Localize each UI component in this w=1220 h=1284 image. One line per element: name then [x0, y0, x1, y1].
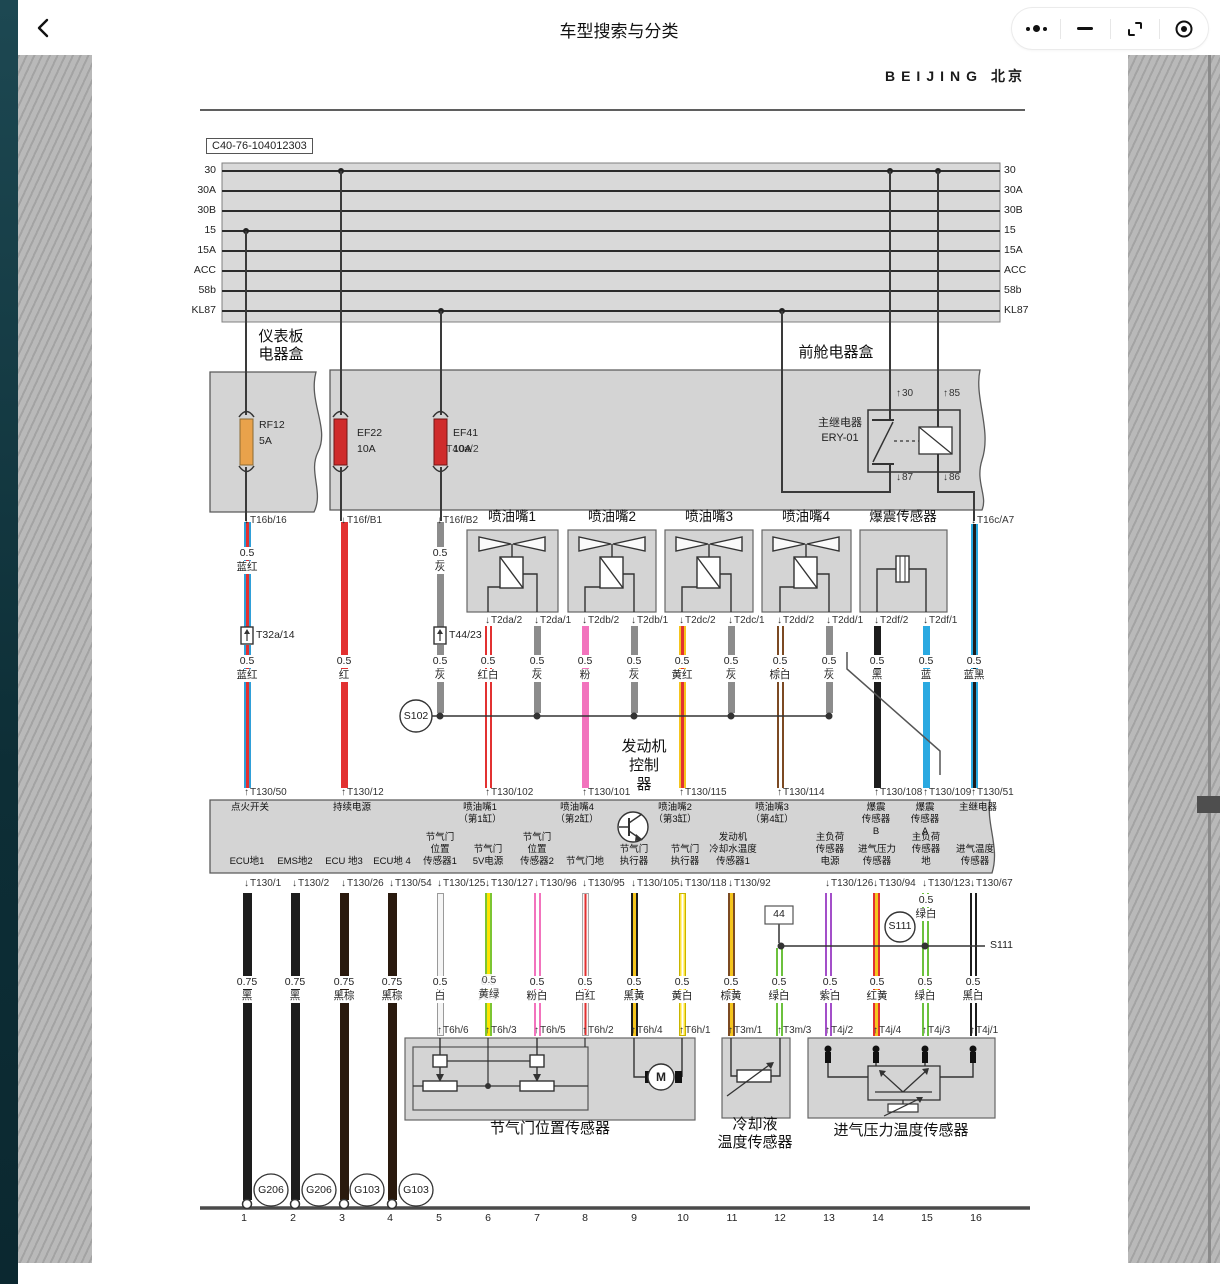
bus-label-left: 30A	[197, 184, 216, 197]
scale-number: 11	[727, 1212, 738, 1225]
terminal-label: T130/50	[244, 786, 287, 799]
motor-label: M	[656, 1071, 666, 1084]
wire-size-label: 0.5	[771, 976, 788, 989]
ecu-pin-label: 喷油嘴1	[463, 802, 497, 814]
wire-color-label: 蓝	[920, 669, 933, 682]
wire-size-label: 0.75	[381, 976, 403, 989]
bus-label-right: 30B	[1004, 204, 1023, 217]
bus-label-right: KL87	[1004, 304, 1029, 317]
scale-number: 14	[872, 1212, 884, 1225]
connector-label: T32a/14	[256, 629, 295, 642]
ground-label: G103	[403, 1184, 429, 1197]
wire-size-label: 0.5	[239, 547, 256, 560]
terminal-label: T2dd/2	[777, 614, 814, 627]
wire-color-label: 黑	[871, 669, 884, 682]
fuse-label: EF22	[357, 427, 382, 440]
terminal-label: T130/108	[874, 786, 922, 799]
wire-size-label: 0.5	[626, 976, 643, 989]
wire-size-label: 0.5	[869, 976, 886, 989]
record-icon[interactable]	[1160, 8, 1208, 49]
wire-color-label: 灰	[434, 561, 447, 574]
fullscreen-icon[interactable]	[1111, 8, 1159, 49]
ecu-pin-label: （第3缸）	[653, 814, 696, 826]
ground-label: G206	[258, 1184, 284, 1197]
ecu-pin-label: 地	[921, 856, 931, 868]
scale-number: 13	[823, 1212, 835, 1225]
wire-size-label: 0.5	[965, 976, 982, 989]
more-icon[interactable]	[1012, 8, 1060, 49]
terminal-label: T130/94	[873, 877, 916, 890]
wire-color-label: 蓝红	[236, 561, 259, 574]
ecu-pin-label: 爆震	[866, 802, 885, 814]
wire-color-label: 黑棕	[333, 990, 356, 1003]
ecu-pin-label: 进气压力	[858, 844, 896, 856]
wire-color-label: 粉	[579, 669, 592, 682]
ecu-pin-label: 发动机	[719, 832, 748, 844]
ecu-pin-label: 传感器	[863, 856, 892, 868]
terminal-label: T16f/B2	[437, 514, 478, 527]
ecu-pin-label: 节气门地	[566, 856, 604, 868]
fuse-label: 10A	[357, 443, 376, 456]
bus-label-right: 15A	[1004, 244, 1023, 257]
scale-number: 1	[241, 1212, 247, 1225]
brand-cn: 北京	[991, 68, 1025, 84]
bus-label-left: KL87	[191, 304, 216, 317]
wire-color-label: 黑黄	[623, 990, 646, 1003]
connector-label: T44/23	[449, 629, 482, 642]
ecu-pin-label: 节气门	[474, 844, 503, 856]
ecu-pin-label: 传感器1	[716, 856, 750, 868]
relay-title: 主继电器	[818, 417, 862, 430]
sensor-title: 冷却液	[732, 1118, 777, 1131]
fuse-label: 5A	[259, 435, 272, 448]
ecu-pin-label: 主负荷	[816, 832, 845, 844]
terminal-label: T16c/A7	[971, 514, 1014, 527]
relay-pin-label: 87	[896, 471, 913, 484]
scale-number: 15	[921, 1212, 933, 1225]
wire-size-label: 0.5	[822, 976, 839, 989]
wire-size-label: 0.5	[723, 655, 740, 668]
wire-color-label: 灰	[434, 669, 447, 682]
ecu-pin-label: 喷油嘴2	[658, 802, 692, 814]
relay-pin-label: 30	[896, 387, 913, 400]
box-title: 仪表板	[258, 330, 303, 343]
ecu-pin-label: 传感器	[911, 814, 940, 826]
wire-color-label: 灰	[628, 669, 641, 682]
fuse-label: RF12	[259, 419, 285, 432]
bus-label-left: 15	[204, 224, 216, 237]
scale-number: 7	[534, 1212, 540, 1225]
ground-label: G206	[306, 1184, 332, 1197]
node-label: 44	[773, 908, 785, 921]
terminal-label: T2dc/2	[679, 614, 716, 627]
terminal-label: T6h/5	[534, 1024, 566, 1037]
ecu-pin-label: ECU 地3	[325, 856, 362, 868]
ecu-pin-label: 主负荷	[912, 832, 941, 844]
terminal-label: T130/105	[631, 877, 679, 890]
relay-title: ERY-01	[821, 432, 858, 445]
ecu-pin-label: 喷油嘴4	[560, 802, 594, 814]
ecu-pin-label: 持续电源	[333, 802, 371, 814]
terminal-label: T130/12	[341, 786, 384, 799]
capsule-menu	[1011, 7, 1209, 50]
ecu-pin-label: 执行器	[620, 856, 649, 868]
terminal-label: T130/95	[582, 877, 625, 890]
wire-size-label: 0.5	[577, 655, 594, 668]
ecu-pin-label: （第2缸）	[555, 814, 598, 826]
component-title: 喷油嘴4	[782, 510, 830, 523]
wire-color-label: 白	[434, 990, 447, 1003]
sensor-title: 节气门位置传感器	[490, 1122, 610, 1135]
terminal-label: T130/118	[679, 877, 727, 890]
wire-size-label: 0.5	[626, 655, 643, 668]
label-layer: 303030A30A30B30B151515A15AACCACC58b58bKL…	[0, 0, 1220, 1284]
ecu-pin-label: 传感器	[862, 814, 891, 826]
wire-color-label: 黑	[241, 990, 254, 1003]
wire-color-label: 绿白	[768, 990, 791, 1003]
wire-color-label: 蓝黑	[963, 669, 986, 682]
screen: 303030A30A30B30B151515A15AACCACC58b58bKL…	[0, 0, 1220, 1284]
terminal-label: T130/51	[971, 786, 1014, 799]
bus-label-right: 30A	[1004, 184, 1023, 197]
bus-label-left: 15A	[197, 244, 216, 257]
ecu-pin-label: 点火开关	[231, 802, 269, 814]
wire-size-label: 0.5	[966, 655, 983, 668]
terminal-label: T2db/2	[582, 614, 619, 627]
wire-color-label: 黄白	[671, 990, 694, 1003]
wire-size-label: 0.5	[674, 655, 691, 668]
ground-label: G103	[354, 1184, 380, 1197]
scale-number: 16	[970, 1212, 982, 1225]
component-title: 爆震传感器	[869, 510, 937, 523]
ecu-pin-label: 电源	[820, 856, 839, 868]
component-title: 喷油嘴1	[488, 510, 536, 523]
bus-label-right: 15	[1004, 224, 1016, 237]
wire-size-label: 0.5	[869, 655, 886, 668]
wire-color-label: 白红	[574, 990, 597, 1003]
terminal-label: T6h/4	[631, 1024, 663, 1037]
wire-color-label: 黑棕	[381, 990, 404, 1003]
wire-color-label: 红黄	[866, 990, 889, 1003]
terminal-label: T6h/2	[582, 1024, 614, 1037]
fuse-label: EF41	[453, 427, 478, 440]
terminal-label: T2dc/1	[728, 614, 765, 627]
splice-label: S111	[889, 920, 912, 933]
wire-size-label: 0.5	[918, 655, 935, 668]
terminal-label: T4j/2	[825, 1024, 853, 1037]
wire-size-label: 0.75	[284, 976, 306, 989]
ecu-title: 器	[636, 778, 651, 791]
wire-color-label: 棕白	[769, 669, 792, 682]
scrollbar-thumb[interactable]	[1197, 796, 1220, 813]
ecu-title: 控制	[629, 759, 659, 772]
wire-color-label: 黑	[289, 990, 302, 1003]
terminal-label: T130/126	[825, 877, 873, 890]
ecu-pin-label: 传感器2	[520, 856, 554, 868]
bus-label-left: 30	[204, 164, 216, 177]
wire-size-label: 0.5	[432, 976, 449, 989]
terminal-label: T130/2	[292, 877, 329, 890]
wire-color-label: 黄绿	[478, 988, 501, 1001]
ecu-pin-label: 冷却水温度	[709, 844, 757, 856]
ecu-pin-label: 节气门	[671, 844, 700, 856]
terminal-label: T130/26	[341, 877, 384, 890]
terminal-label: T130/109	[923, 786, 971, 799]
splice-label: S102	[404, 710, 429, 723]
ecu-pin-label: EMS地2	[277, 856, 312, 868]
wire-color-label: 黑白	[962, 990, 985, 1003]
ecu-pin-label: 执行器	[671, 856, 700, 868]
wire-size-label: 0.5	[772, 655, 789, 668]
wire-size-label: 0.5	[674, 976, 691, 989]
wire-size-label: 0.75	[333, 976, 355, 989]
box-title: 前舱电器盒	[798, 346, 873, 359]
component-title: 喷油嘴3	[685, 510, 733, 523]
ecu-pin-label: 传感器1	[423, 856, 457, 868]
bus-label-left: ACC	[194, 264, 216, 277]
relay-pin-label: 86	[943, 471, 960, 484]
app-header: 车型搜索与分类	[18, 0, 1220, 55]
terminal-label: T6h/1	[679, 1024, 711, 1037]
wire-size-label: 0.5	[529, 976, 546, 989]
terminal-label: T130/96	[534, 877, 577, 890]
wire-size-label: 0.5	[480, 655, 497, 668]
terminal-label: T6h/3	[485, 1024, 517, 1037]
wire-color-label: 粉白	[526, 990, 549, 1003]
wire-color-label: 紫白	[819, 990, 842, 1003]
scale-number: 4	[387, 1212, 393, 1225]
ecu-pin-label: 位置	[430, 844, 449, 856]
splice-ref-label: S111	[990, 939, 1013, 952]
ecu-pin-label: 位置	[527, 844, 546, 856]
wire-color-label: 蓝红	[236, 669, 259, 682]
terminal-label: T16f/B1	[341, 514, 382, 527]
wire-size-label: 0.5	[239, 655, 256, 668]
scale-number: 6	[485, 1212, 491, 1225]
minimize-icon[interactable]	[1061, 8, 1109, 49]
terminal-label: T2db/1	[631, 614, 668, 627]
terminal-label: T4j/4	[873, 1024, 901, 1037]
scale-number: 5	[436, 1212, 442, 1225]
bus-label-right: 30	[1004, 164, 1016, 177]
wire-color-label: 棕黄	[720, 990, 743, 1003]
terminal-label: T6h/6	[437, 1024, 469, 1037]
relay-pin-label: 85	[943, 387, 960, 400]
terminal-label: T4j/1	[970, 1024, 998, 1037]
scale-number: 12	[774, 1212, 786, 1225]
wire-size-label: 0.5	[529, 655, 546, 668]
ecu-pin-label: ECU地 4	[373, 856, 410, 868]
terminal-label: T130/123	[922, 877, 970, 890]
terminal-label: T130/125	[437, 877, 485, 890]
ecu-pin-label: 传感器	[961, 856, 990, 868]
wire-size-label: 0.5	[821, 655, 838, 668]
terminal-label: T16b/16	[244, 514, 287, 527]
scale-number: 8	[582, 1212, 588, 1225]
wire-size-label: 0.5	[723, 976, 740, 989]
box-title: 电器盒	[258, 348, 303, 361]
wire-size-label: 0.5	[918, 894, 935, 907]
terminal-label: T2da/1	[534, 614, 571, 627]
ecu-pin-label: 5V电源	[473, 856, 504, 868]
ecu-pin-label: 节气门	[620, 844, 649, 856]
terminal-label: T2dd/1	[826, 614, 863, 627]
ecu-pin-label: 喷油嘴3	[755, 802, 789, 814]
wire-size-label: 0.5	[432, 547, 449, 560]
ecu-pin-label: 传感器	[816, 844, 845, 856]
wire-size-label: 0.5	[577, 976, 594, 989]
terminal-label: T130/127	[485, 877, 533, 890]
terminal-label: T130/54	[389, 877, 432, 890]
scale-number: 2	[290, 1212, 296, 1225]
ecu-pin-label: 主继电器	[959, 802, 997, 814]
wire-color-label: 红	[338, 669, 351, 682]
fuse-label: 10A	[453, 443, 472, 456]
terminal-label: T4j/3	[922, 1024, 950, 1037]
bus-label-left: 58b	[198, 284, 216, 297]
terminal-label: T2df/2	[874, 614, 908, 627]
terminal-label: T130/67	[970, 877, 1013, 890]
wire-color-label: 灰	[823, 669, 836, 682]
scale-number: 3	[339, 1212, 345, 1225]
terminal-label: T130/115	[679, 786, 727, 799]
bus-label-right: 58b	[1004, 284, 1022, 297]
ecu-pin-label: 进气温度	[956, 844, 994, 856]
terminal-label: T130/102	[485, 786, 533, 799]
terminal-label: T130/114	[777, 786, 825, 799]
wire-color-label: 红白	[477, 669, 500, 682]
wire-size-label: 0.5	[432, 655, 449, 668]
ecu-pin-label: B	[873, 826, 879, 838]
scale-number: 9	[631, 1212, 637, 1225]
wire-color-label: 灰	[725, 669, 738, 682]
sensor-title: 温度传感器	[717, 1136, 792, 1149]
terminal-label: T130/1	[244, 877, 281, 890]
bus-label-left: 30B	[197, 204, 216, 217]
wire-size-label: 0.75	[236, 976, 258, 989]
ecu-pin-label: 节气门	[523, 832, 552, 844]
brand-logo: BEIJING北京	[700, 66, 1025, 86]
sensor-title: 进气压力温度传感器	[833, 1124, 968, 1137]
wire-color-label: 绿白	[914, 990, 937, 1003]
wire-size-label: 0.5	[336, 655, 353, 668]
component-title: 喷油嘴2	[588, 510, 636, 523]
scale-number: 10	[677, 1212, 689, 1225]
wire-size-label: 0.5	[481, 974, 498, 987]
terminal-label: T130/101	[582, 786, 630, 799]
ecu-pin-label: 传感器	[912, 844, 941, 856]
ecu-pin-label: 节气门	[426, 832, 455, 844]
wire-size-label: 0.5	[917, 976, 934, 989]
terminal-label: T2df/1	[923, 614, 957, 627]
ecu-pin-label: （第1缸）	[458, 814, 501, 826]
wire-color-label: 灰	[531, 669, 544, 682]
terminal-label: T130/92	[728, 877, 771, 890]
bus-label-right: ACC	[1004, 264, 1026, 277]
terminal-label: T3m/1	[728, 1024, 762, 1037]
brand-en: BEIJING	[885, 68, 983, 84]
ecu-pin-label: ECU地1	[230, 856, 265, 868]
terminal-label: T3m/3	[777, 1024, 811, 1037]
wire-color-label: 绿白	[915, 908, 938, 921]
terminal-label: T2da/2	[485, 614, 522, 627]
ecu-title: 发动机	[621, 740, 666, 753]
ecu-pin-label: 爆震	[915, 802, 934, 814]
doc-code-box: C40-76-104012303	[206, 138, 313, 154]
ecu-pin-label: （第4缸）	[750, 814, 793, 826]
page-bottom-bar	[18, 1263, 1220, 1284]
wire-color-label: 黄红	[671, 669, 694, 682]
